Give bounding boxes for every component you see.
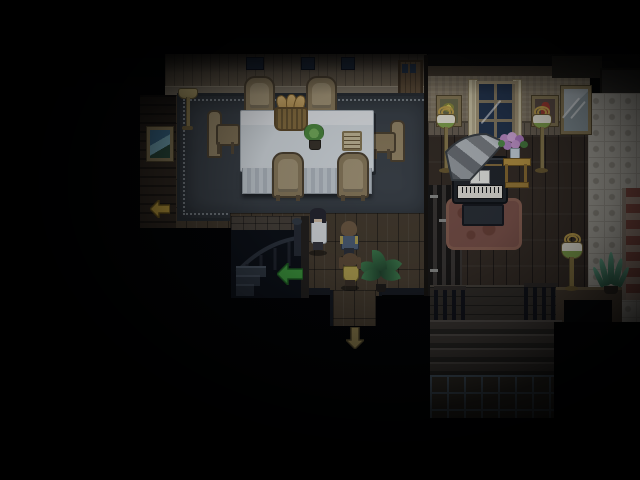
table-centerpiece-plant [302,124,326,150]
transom-window [246,57,264,70]
character-adult-white-coat [308,208,328,256]
south-corridor-floor [330,290,382,329]
dining-chair-bottom-right [337,152,369,198]
wall-cabinet [552,56,602,78]
south-exit-arrow[interactable] [346,327,364,349]
stair-balusters-right [524,283,558,322]
green-floor-lamp [559,233,583,293]
lamp-pole [186,97,190,127]
wall-mirror [561,86,591,134]
piano-keys [457,185,503,199]
table-book [342,131,362,151]
dining-chair-top-left [244,76,275,114]
dining-chair-top-right [306,76,337,114]
west-exit-arrow[interactable] [150,200,170,218]
lamp-base [182,126,193,130]
dining-chair-right [371,120,401,160]
flower-stand [498,132,530,194]
foyer-steps [430,320,562,375]
game-viewport[interactable] [0,0,640,480]
darkness-bottom [0,418,640,480]
dining-back-wall [165,54,427,88]
wall-painting-blue [147,127,173,161]
dining-floor-lamp [177,88,197,132]
door-pane [402,64,408,73]
stairs-down-arrow[interactable] [277,263,303,285]
darkness-left [0,0,140,480]
newel-ball [292,218,302,225]
music-floor-lamp-right [530,106,552,178]
foyer-tile-floor [430,375,562,418]
dining-chair-bottom-left [272,152,304,198]
stairwell-down [231,216,309,298]
transom-window [341,57,355,70]
character-girl-yellow-dress [339,253,361,291]
darkness-top [140,0,640,54]
aloe-plant [596,252,626,296]
stair-step [236,284,254,296]
dining-chair-left [207,110,237,156]
transom-window [301,57,315,70]
stair-balusters-left [434,286,466,322]
door-pane [410,64,416,73]
newel-post [294,222,301,256]
hallway-palm-plant [363,250,399,294]
bread-basket [273,95,305,129]
piano-bench [462,204,504,226]
